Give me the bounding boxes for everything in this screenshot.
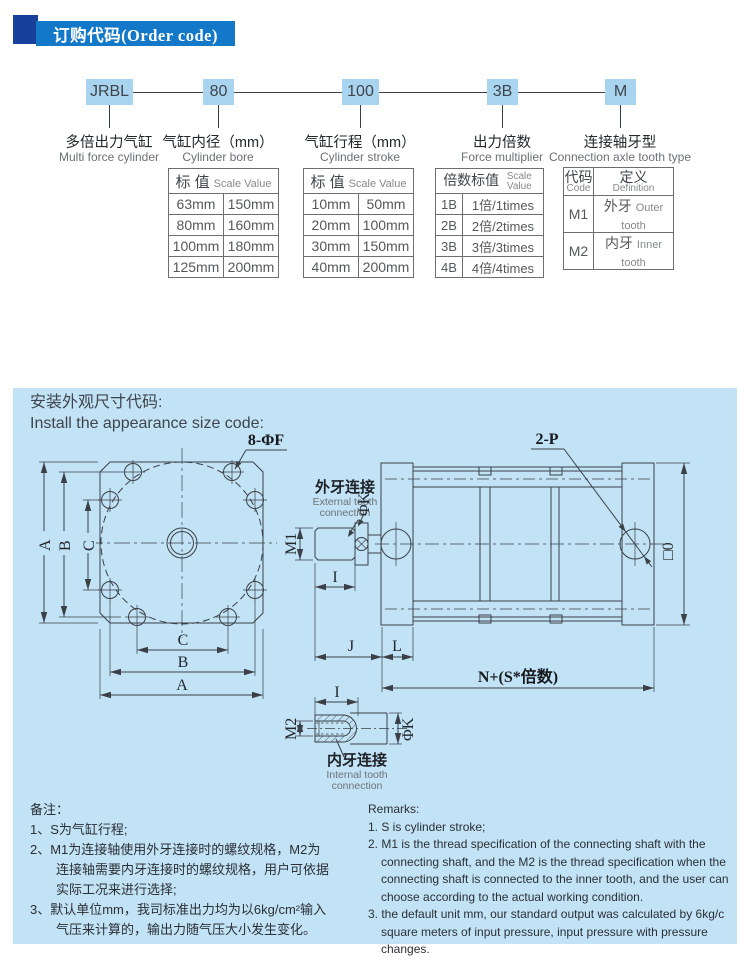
panel-title-en: Install the appearance size code: bbox=[30, 413, 264, 434]
table-row: 20mm100mm bbox=[304, 215, 414, 236]
internal-tooth-detail: I ΦK M2 内牙连接 Internal tooth connection bbox=[283, 684, 417, 792]
code-box: M bbox=[605, 79, 636, 105]
dim-label-A: A bbox=[176, 677, 188, 694]
remarks-cn-line: 3、默认单位mm，我司标准出力均为以6kg/cm²输入 bbox=[30, 900, 366, 920]
code-stem bbox=[620, 105, 621, 128]
internal-tooth-label-en2: connection bbox=[332, 780, 383, 792]
segment-label-en: Connection axle tooth type bbox=[470, 150, 750, 164]
table-row: 63mm150mm bbox=[169, 194, 279, 215]
length-dimensions: J L N+(S*倍数) bbox=[315, 627, 654, 692]
internal-tooth-label-cn: 内牙连接 bbox=[327, 751, 387, 769]
code-stem bbox=[218, 105, 219, 128]
dim-label-phiK: ΦK bbox=[400, 717, 417, 741]
remarks-en-line: 1. S is cylinder stroke; bbox=[368, 819, 736, 837]
dim-label-M2: M2 bbox=[283, 718, 300, 740]
catalog-page: 订购代码(Order code) JRBL 多倍出力气缸 Multi force… bbox=[0, 0, 750, 961]
code-box: JRBL bbox=[86, 79, 133, 105]
external-tooth-detail: 外牙连接 External tooth connection M1 I ΦK bbox=[283, 478, 381, 661]
dim-label-B: B bbox=[57, 540, 74, 551]
dim-label-L: L bbox=[392, 638, 402, 655]
dim-label-I: I bbox=[334, 684, 339, 701]
front-bottom-dimensions: C B A bbox=[100, 601, 263, 699]
front-view: A B C C B A 8-ΦF bbox=[36, 432, 287, 699]
bore-table-header: 标 值 Scale Value bbox=[169, 169, 279, 194]
stroke-table-header: 标 值 Scale Value bbox=[304, 169, 414, 194]
bore-table: 标 值 Scale Value 63mm150mm 80mm160mm 100m… bbox=[168, 168, 279, 278]
port-callout: 2-P bbox=[531, 431, 652, 567]
dim-label-M1: M1 bbox=[283, 533, 300, 555]
tooth-type-table: 代码 Code 定义 Definition M1 外牙 Outer tooth … bbox=[563, 167, 674, 270]
code-stem bbox=[502, 105, 503, 128]
code-box: 80 bbox=[203, 79, 234, 105]
table-row: M1 外牙 Outer tooth bbox=[564, 196, 674, 233]
dim-label-C: C bbox=[81, 540, 98, 551]
remarks-cn: 备注： 1、S为气缸行程; 2、M1为连接轴使用外牙连接时的螺纹规格，M2为 连… bbox=[30, 800, 366, 940]
code-box: 3B bbox=[487, 79, 518, 105]
remarks-en-line: connecting shaft is connected to the inn… bbox=[368, 871, 736, 889]
remarks-cn-line: 2、M1为连接轴使用外牙连接时的螺纹规格，M2为 bbox=[30, 840, 366, 860]
remarks-en: Remarks: 1. S is cylinder stroke; 2. M1 … bbox=[368, 801, 736, 959]
install-size-panel: A B C C B A 8-ΦF bbox=[13, 388, 737, 944]
dim-label-total: N+(S*倍数) bbox=[478, 667, 558, 686]
remarks-en-line: 3. the default unit mm, our standard out… bbox=[368, 906, 736, 924]
page-title: 订购代码(Order code) bbox=[36, 21, 235, 46]
bolt-holes-label: 8-ΦF bbox=[248, 432, 285, 449]
remarks-cn-line: 连接轴需要内牙连接时的螺纹规格，用户可依据 bbox=[30, 860, 366, 880]
table-row: M2 内牙 Inner tooth bbox=[564, 233, 674, 270]
tooth-table-header: 代码 Code 定义 Definition bbox=[564, 168, 674, 196]
table-row: 125mm200mm bbox=[169, 257, 279, 278]
remarks-en-line: connecting shaft, and the M2 is the thre… bbox=[368, 854, 736, 872]
bolt-holes bbox=[98, 460, 267, 629]
table-row: 40mm200mm bbox=[304, 257, 414, 278]
table-row: 100mm180mm bbox=[169, 236, 279, 257]
table-row: 80mm160mm bbox=[169, 215, 279, 236]
front-left-dimensions: A B C bbox=[36, 462, 121, 623]
remarks-cn-title: 备注： bbox=[30, 800, 366, 820]
remarks-en-line: 2. M1 is the thread specification of the… bbox=[368, 836, 736, 854]
header-accent-square bbox=[13, 15, 38, 44]
stroke-table: 标 值 Scale Value 10mm50mm 20mm100mm 30mm1… bbox=[303, 168, 414, 278]
dim-label-phiK: ΦK bbox=[356, 492, 373, 516]
multiplier-table-header: 倍数标值 Scale Value bbox=[436, 169, 544, 194]
dim-label-C: C bbox=[178, 632, 189, 649]
remarks-cn-line: 实际工况来进行选择; bbox=[30, 880, 366, 900]
remarks-en-line: square meters of input pressure, input p… bbox=[368, 924, 736, 959]
remarks-en-title: Remarks: bbox=[368, 801, 736, 819]
dim-label-A: A bbox=[37, 539, 54, 551]
panel-title-cn: 安装外观尺寸代码: bbox=[30, 392, 264, 413]
square-o-dimension: □0 bbox=[656, 463, 690, 625]
code-stem bbox=[109, 105, 110, 128]
dim-label-I: I bbox=[332, 569, 337, 586]
bolt-hole-callout: 8-ΦF bbox=[235, 432, 287, 469]
panel-title: 安装外观尺寸代码: Install the appearance size co… bbox=[30, 392, 264, 434]
dim-label-squareO: □0 bbox=[660, 542, 677, 560]
dim-label-J: J bbox=[348, 638, 354, 655]
table-row: 2B2倍/2times bbox=[436, 215, 544, 236]
multiplier-table: 倍数标值 Scale Value 1B1倍/1times 2B2倍/2times… bbox=[435, 168, 544, 278]
remarks-cn-line: 气压来计算的，输出力随气压大小发生变化。 bbox=[30, 920, 366, 940]
code-stem bbox=[360, 105, 361, 128]
table-row: 30mm150mm bbox=[304, 236, 414, 257]
segment-label-cn: 连接轴牙型 bbox=[470, 131, 750, 152]
table-row: 1B1倍/1times bbox=[436, 194, 544, 215]
dim-label-B: B bbox=[178, 654, 189, 671]
remarks-cn-line: 1、S为气缸行程; bbox=[30, 820, 366, 840]
side-view: 2-P □0 J bbox=[315, 431, 690, 692]
table-row: 10mm50mm bbox=[304, 194, 414, 215]
table-row: 3B3倍/3times bbox=[436, 236, 544, 257]
ports-label: 2-P bbox=[535, 431, 558, 448]
table-row: 4B4倍/4times bbox=[436, 257, 544, 278]
remarks-en-line: choose according to the actual working c… bbox=[368, 889, 736, 907]
code-box: 100 bbox=[342, 79, 379, 105]
